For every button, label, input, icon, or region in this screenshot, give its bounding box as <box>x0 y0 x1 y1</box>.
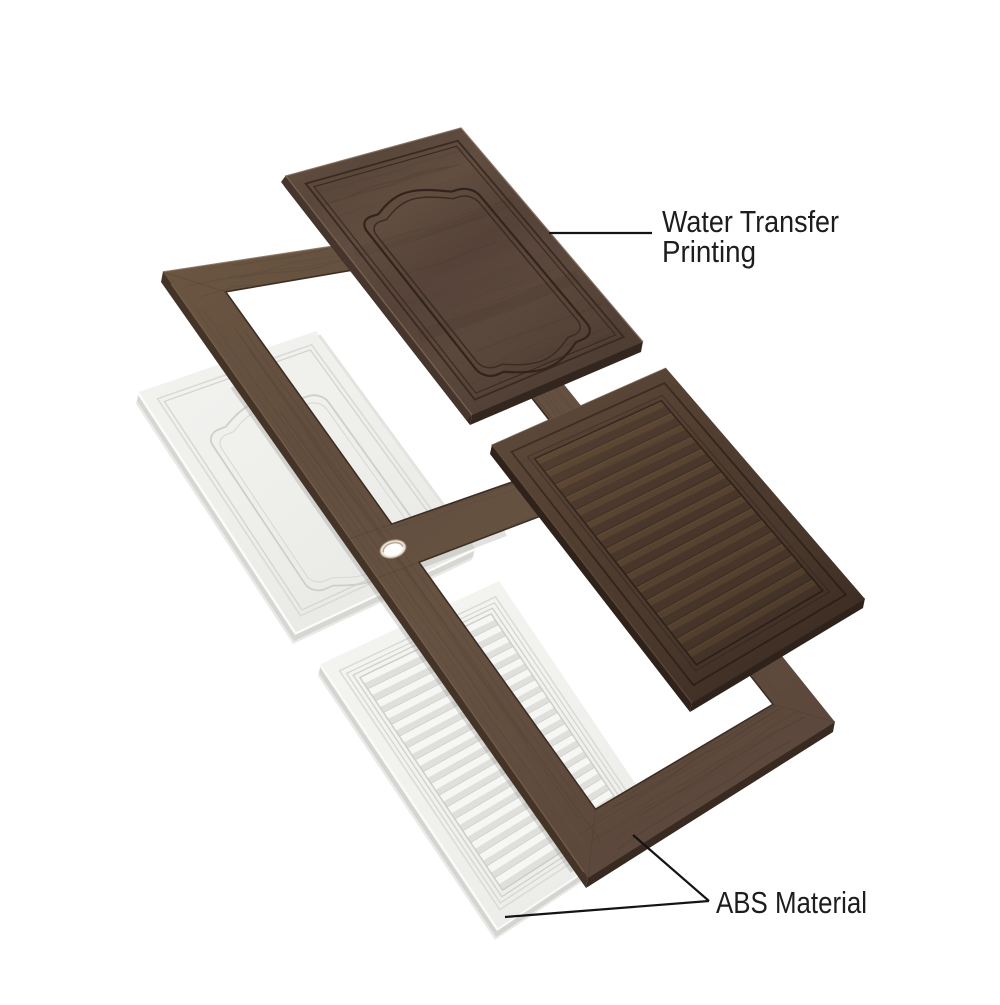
svg-text:ABS Material: ABS Material <box>716 885 867 920</box>
svg-text:Printing: Printing <box>662 234 756 269</box>
